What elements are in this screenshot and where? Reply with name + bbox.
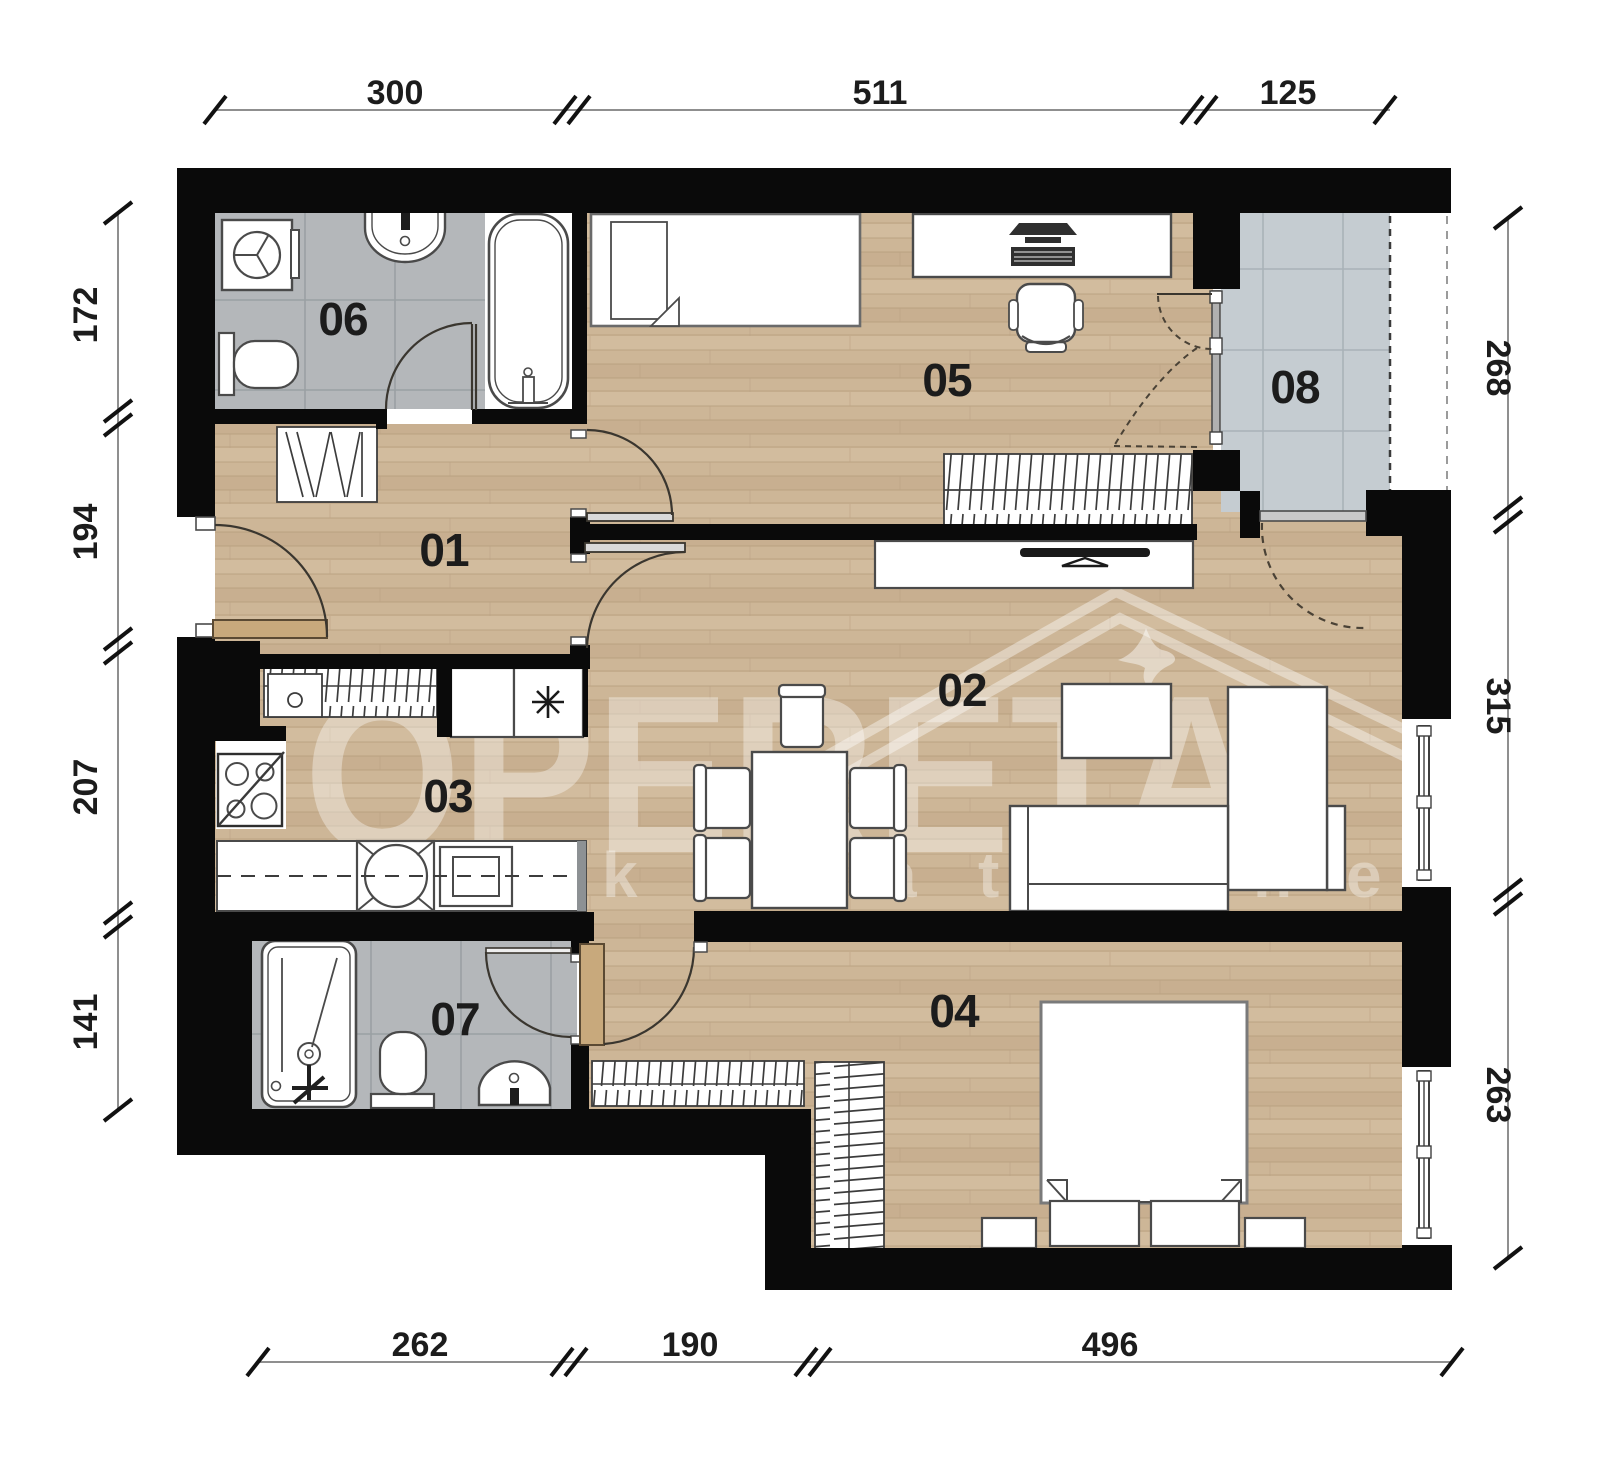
svg-text:315: 315 [1479,678,1517,735]
svg-text:01: 01 [419,524,469,576]
svg-text:e: e [1346,839,1382,911]
svg-text:k: k [602,839,638,911]
svg-text:190: 190 [662,1326,719,1364]
svg-text:03: 03 [423,770,472,822]
svg-text:02: 02 [937,664,986,716]
svg-text:496: 496 [1082,1326,1139,1364]
svg-text:t: t [978,839,999,911]
svg-text:04: 04 [929,985,980,1037]
svg-text:05: 05 [922,354,972,406]
svg-text:262: 262 [392,1326,449,1364]
svg-text:300: 300 [367,74,424,112]
svg-text:141: 141 [67,994,105,1051]
svg-text:207: 207 [67,759,105,816]
svg-text:268: 268 [1479,340,1517,397]
svg-text:08: 08 [1270,361,1320,413]
svg-text:125: 125 [1260,74,1317,112]
svg-text:07: 07 [430,993,479,1045]
svg-text:263: 263 [1479,1067,1517,1124]
svg-text:06: 06 [318,293,367,345]
svg-text:511: 511 [853,74,908,112]
svg-text:194: 194 [67,504,105,561]
svg-text:172: 172 [67,287,105,344]
